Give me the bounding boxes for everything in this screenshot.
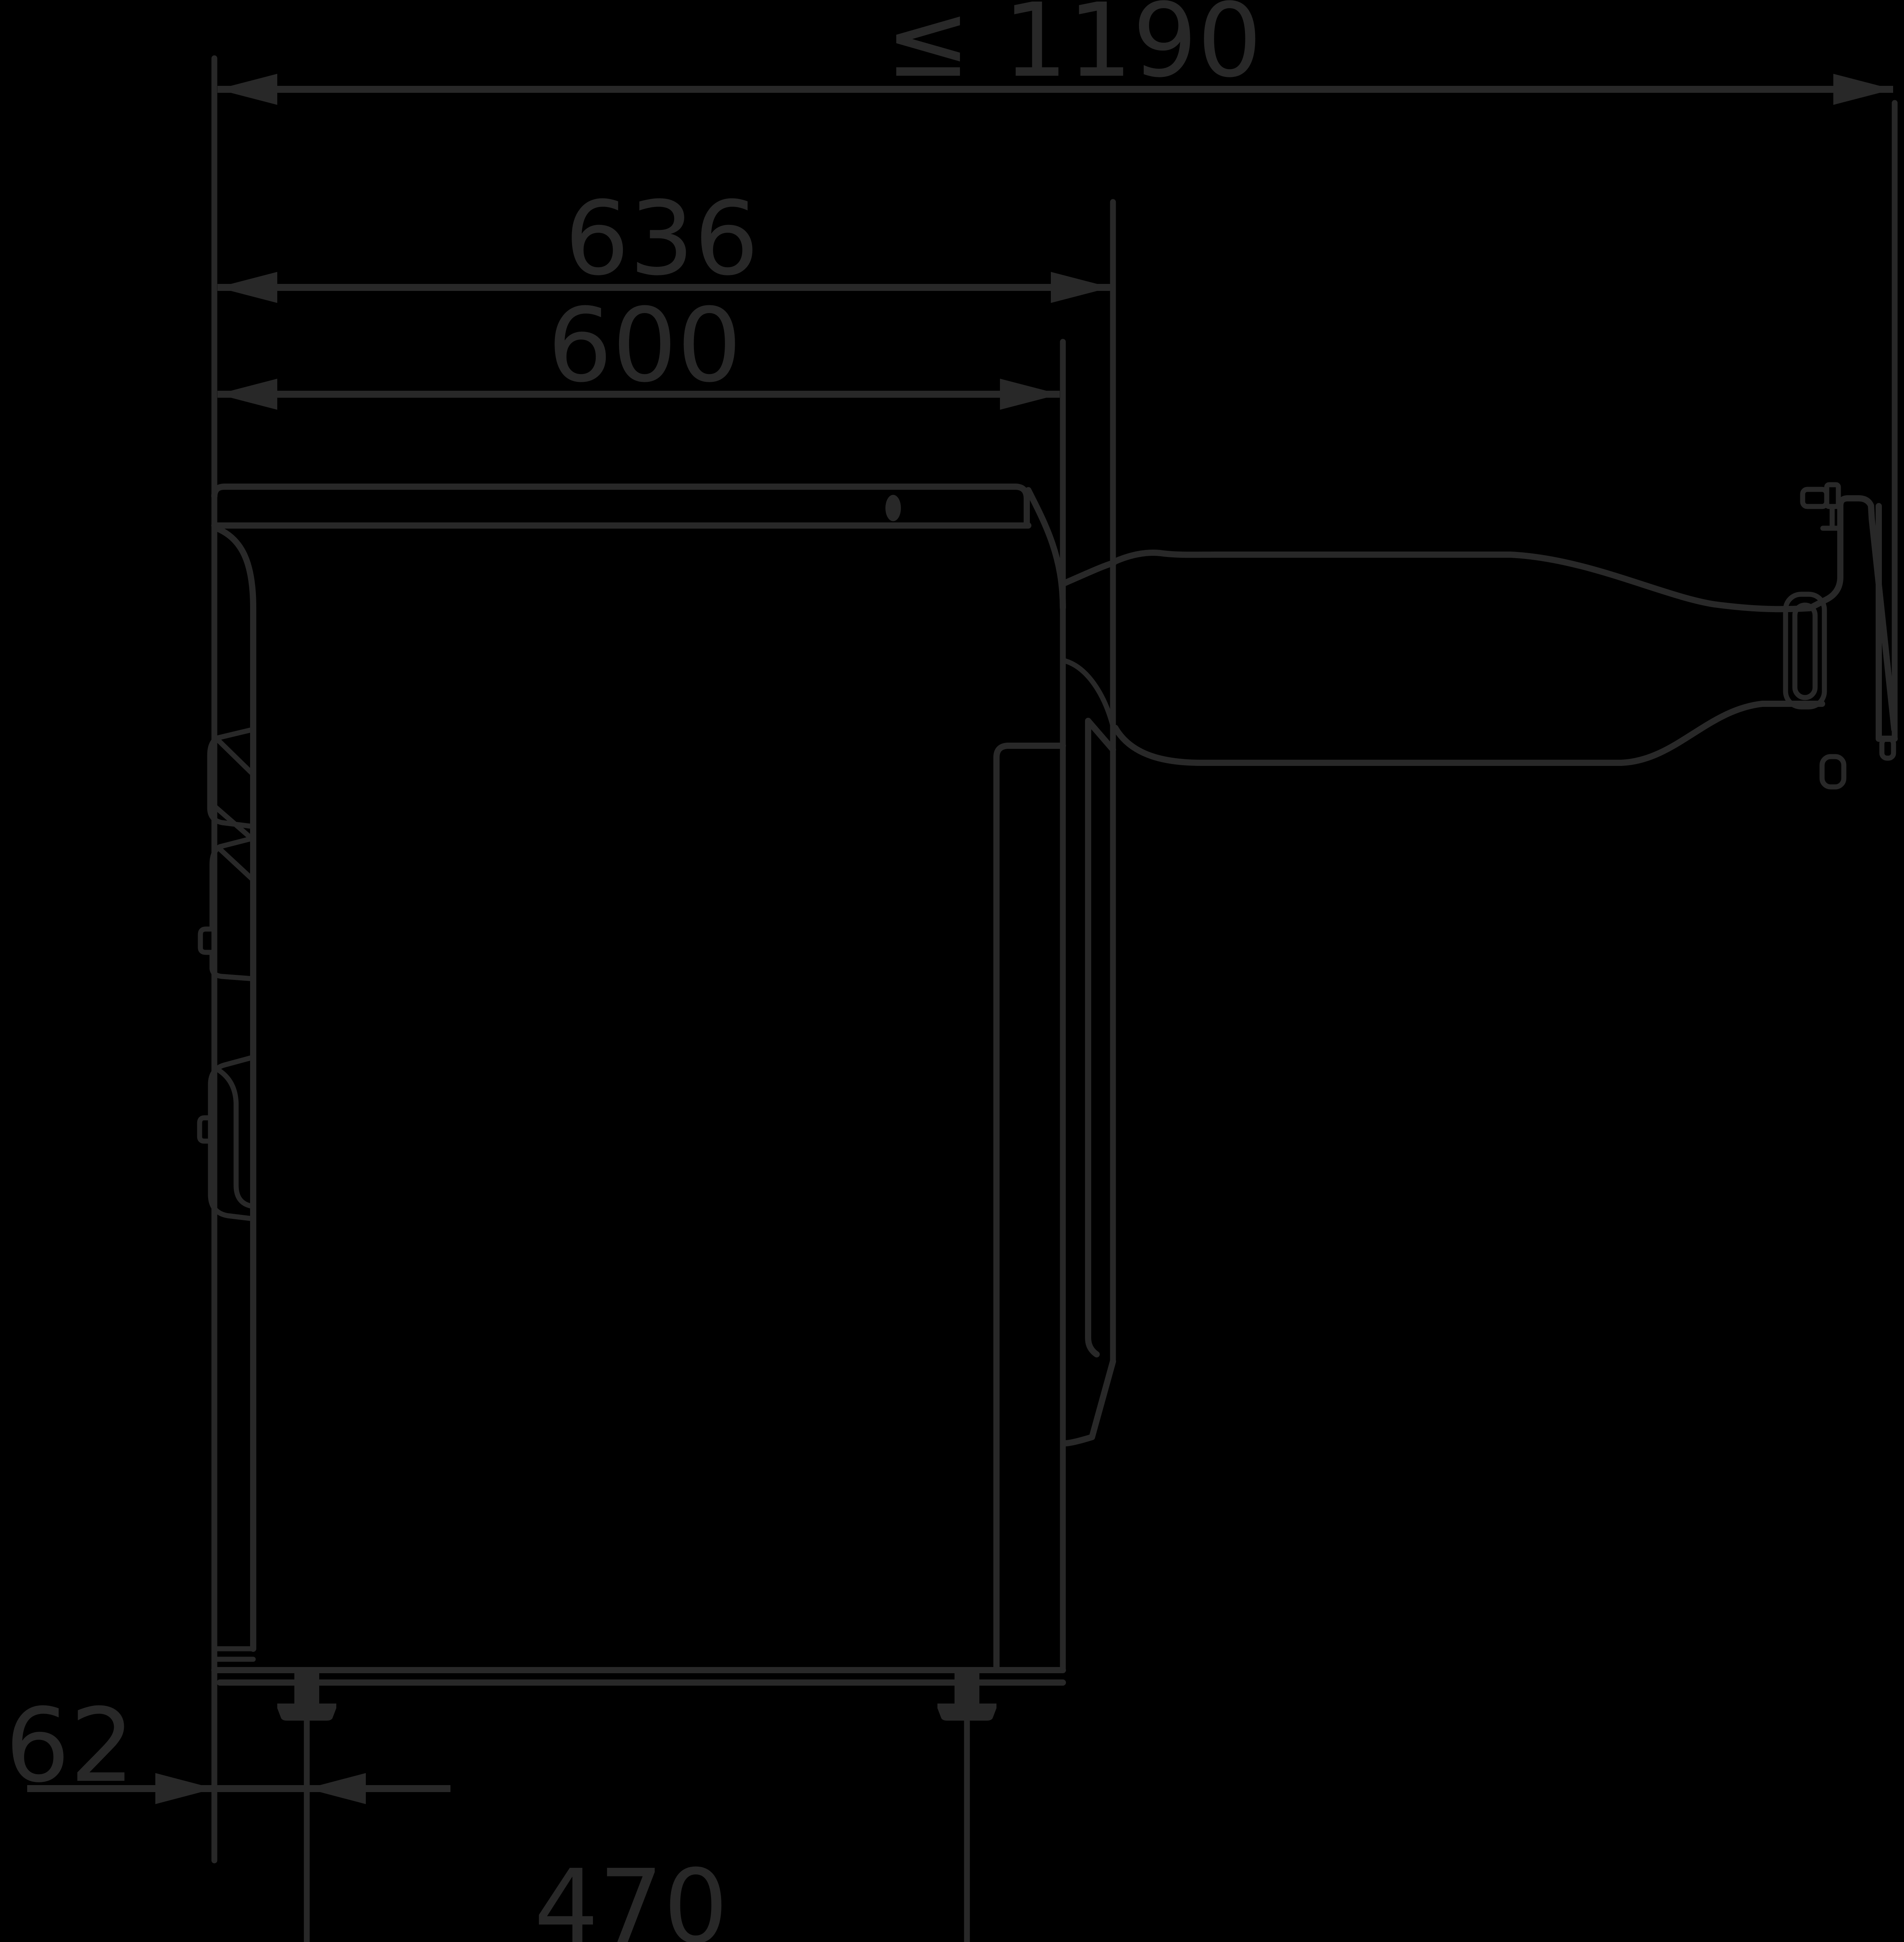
- top-panel-hinge-pin: [885, 495, 901, 521]
- door-closed-bottom-bevel: [1092, 1361, 1113, 1437]
- arrowhead-left-1190: [217, 74, 277, 105]
- door-end-diagonal: [1872, 519, 1894, 729]
- door-bottom-latch-tab: [1822, 757, 1844, 787]
- front-foot-stem: [955, 1669, 979, 1704]
- rear-foot-pad: [277, 1704, 336, 1721]
- dimension-1190: ≤ 1190: [217, 0, 1893, 105]
- arrowhead-left-636: [217, 272, 277, 303]
- dimension-label-636: 636: [565, 179, 759, 298]
- upper-bracket-rib-1: [218, 740, 252, 773]
- door-hinge-neck-upper: [1064, 563, 1114, 583]
- dimension-label-1190: ≤ 1190: [885, 0, 1262, 100]
- rear-panel-fittings: [200, 729, 253, 1219]
- top-panel-outline: [214, 487, 1027, 524]
- arrowhead-right-1190: [1833, 74, 1893, 105]
- front-foot: [937, 1669, 996, 1721]
- extension-lines: [214, 58, 1895, 1942]
- front-foot-pad: [937, 1704, 996, 1721]
- door-end-finger-2: [1827, 485, 1838, 506]
- door-end-assembly: [1786, 485, 1895, 787]
- front-door-recess: [996, 746, 1063, 1670]
- middle-bracket-outline: [200, 838, 253, 979]
- arrowhead-right-into-62: [155, 1773, 214, 1804]
- rear-foot: [277, 1669, 336, 1721]
- feet: [277, 1669, 996, 1721]
- rear-foot-stem: [294, 1669, 319, 1704]
- door-closed-top-bevel: [1088, 721, 1113, 750]
- dimension-label-600: 600: [548, 286, 742, 405]
- arrowhead-left-600: [217, 379, 277, 410]
- door-hinge-neck-lower: [1063, 660, 1113, 726]
- door-handle-pocket-inner: [1795, 605, 1815, 698]
- arrowhead-right-636: [1051, 272, 1111, 303]
- dimension-600: 600: [217, 286, 1060, 410]
- fascia-curve: [1028, 490, 1063, 608]
- lower-fitting-inner: [219, 1070, 253, 1206]
- dimension-label-62: 62: [5, 1686, 134, 1805]
- door-closed-inner-face: [1088, 721, 1097, 1354]
- dimension-62: 62: [5, 1686, 450, 1805]
- dimension-636: 636: [217, 179, 1111, 303]
- middle-bracket-rib: [220, 849, 252, 879]
- door-open-profile: [1063, 553, 1822, 763]
- door-closed-bottom-edge: [1065, 1437, 1092, 1443]
- arrowhead-right-600: [1000, 379, 1060, 410]
- arrowhead-left-into-62: [307, 1773, 366, 1804]
- dimension-470: 470: [307, 1848, 967, 1942]
- door-end-bracket: [1810, 498, 1872, 608]
- machine-body: [214, 487, 1063, 1683]
- door-open-bottom-edge: [1115, 704, 1822, 763]
- door-open-top-edge: [1114, 553, 1809, 609]
- door-end-finger-1: [1803, 489, 1827, 506]
- door-closed-profile: [1065, 721, 1113, 1443]
- dimension-label-470: 470: [534, 1848, 728, 1942]
- dimension-drawing: ≤ 1190 636 600 62 470: [0, 0, 1904, 1942]
